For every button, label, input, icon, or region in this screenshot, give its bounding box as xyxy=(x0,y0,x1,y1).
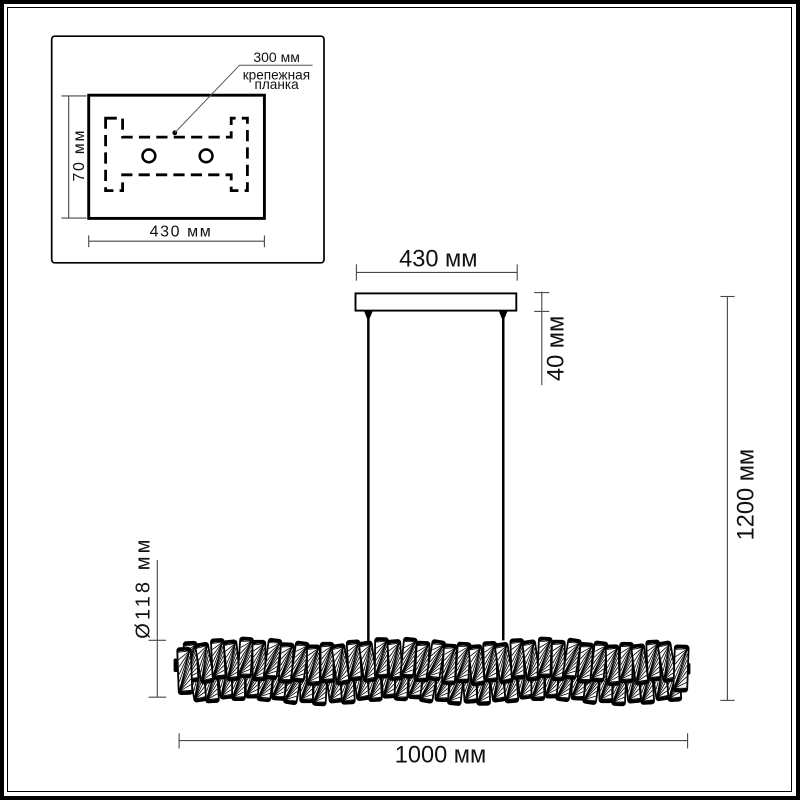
svg-text:70 мм: 70 мм xyxy=(71,129,88,182)
svg-text:300 мм: 300 мм xyxy=(253,49,300,65)
svg-text:430 мм: 430 мм xyxy=(399,246,477,272)
svg-text:1000 мм: 1000 мм xyxy=(395,742,486,768)
svg-text:Ø118 мм: Ø118 мм xyxy=(133,536,155,638)
svg-text:430 мм: 430 мм xyxy=(150,223,213,240)
svg-text:40 мм: 40 мм xyxy=(544,316,570,381)
svg-text:планка: планка xyxy=(255,77,300,92)
svg-text:1200 мм: 1200 мм xyxy=(733,449,759,540)
